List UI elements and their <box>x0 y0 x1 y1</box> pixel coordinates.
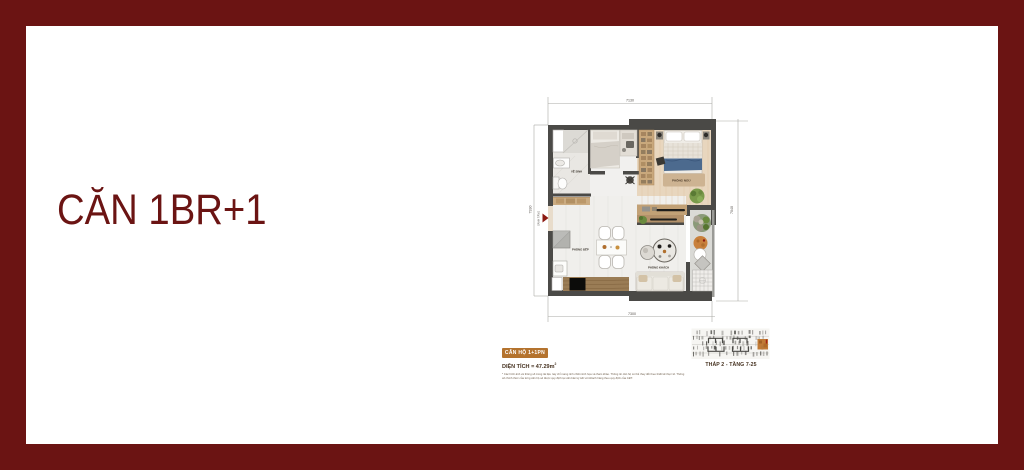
svg-text:7130: 7130 <box>626 99 634 103</box>
svg-text:7300: 7300 <box>628 312 636 316</box>
svg-text:PHÒNG KHÁCH: PHÒNG KHÁCH <box>648 265 669 270</box>
svg-text:7330: 7330 <box>529 206 533 214</box>
svg-text:PHÒNG NGỦ: PHÒNG NGỦ <box>672 178 691 183</box>
svg-text:PHÒNG BẾP: PHÒNG BẾP <box>572 247 589 252</box>
svg-text:SẢNH TẦNG: SẢNH TẦNG <box>536 211 541 226</box>
svg-text:VỆ SINH: VỆ SINH <box>571 169 582 174</box>
svg-text:7040: 7040 <box>730 206 734 214</box>
